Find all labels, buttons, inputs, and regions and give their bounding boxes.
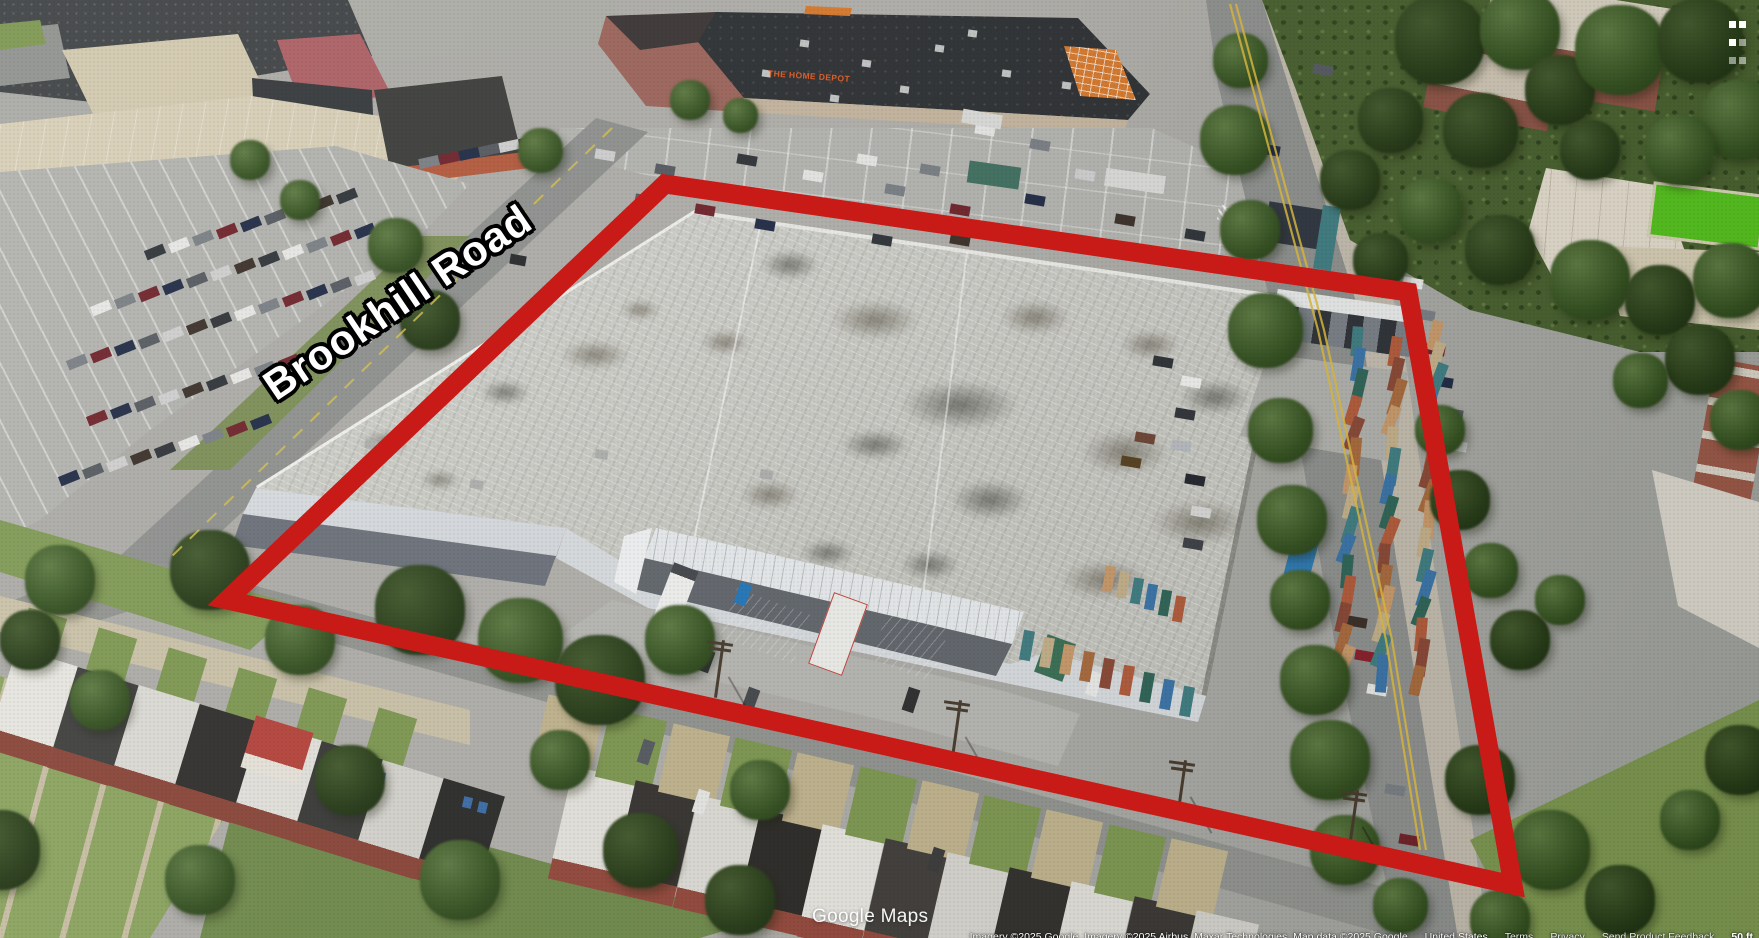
scale-label: 50 ft <box>1731 931 1753 938</box>
light-wash <box>0 0 1759 938</box>
google-maps-watermark: Google Maps <box>812 906 928 928</box>
region-label: United States <box>1425 931 1488 938</box>
dot <box>1739 39 1746 46</box>
feedback-link[interactable]: Send Product Feedback <box>1602 931 1715 938</box>
terms-link[interactable]: Terms <box>1505 931 1534 938</box>
aerial-imagery: THE HOME DEPOT <box>0 0 1759 938</box>
grid-dots-icon <box>1729 15 1758 69</box>
imagery-credit: Imagery ©2025 Google, Imagery ©2025 Airb… <box>970 931 1408 938</box>
dot <box>1739 21 1746 28</box>
dot <box>1729 57 1736 64</box>
privacy-link[interactable]: Privacy <box>1550 931 1584 938</box>
map-canvas[interactable]: THE HOME DEPOT Brookhill Road Google Map… <box>0 0 1759 938</box>
dot <box>1739 57 1746 64</box>
dot <box>1729 39 1736 46</box>
dot <box>1729 21 1736 28</box>
attribution-bar: Imagery ©2025 Google, Imagery ©2025 Airb… <box>970 931 1753 938</box>
